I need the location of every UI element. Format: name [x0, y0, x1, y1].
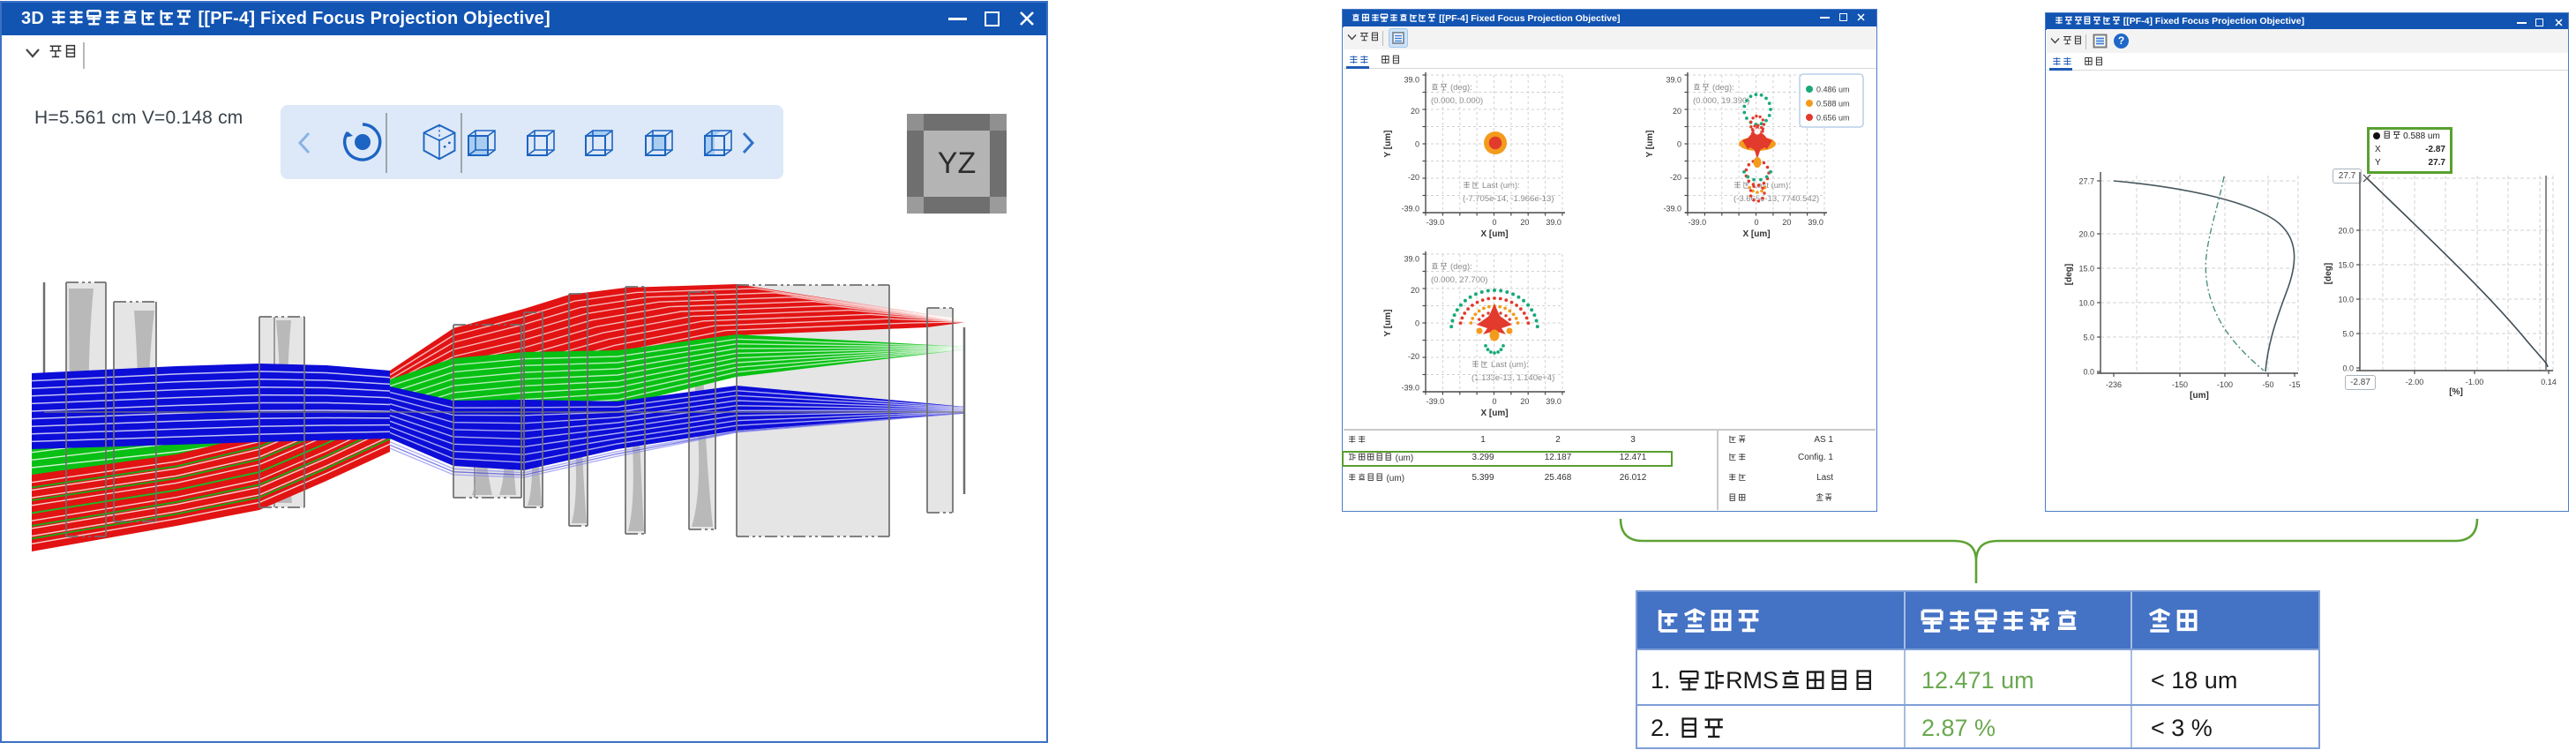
svg-text:0: 0	[1492, 218, 1496, 227]
svg-text:Y [um]: Y [um]	[1383, 131, 1393, 158]
svg-text:-39.0: -39.0	[1401, 205, 1419, 214]
svg-text:39.0: 39.0	[1404, 254, 1419, 263]
svg-text:5.0: 5.0	[2083, 334, 2094, 342]
svg-text:-20: -20	[1408, 352, 1419, 361]
svg-text:20.0: 20.0	[2078, 230, 2094, 239]
svg-text:[deg]: [deg]	[2064, 264, 2074, 285]
svg-text:[%]: [%]	[2449, 387, 2463, 397]
svg-text:20: 20	[1411, 107, 1419, 116]
svg-text:20: 20	[1520, 397, 1529, 406]
svg-text:39.0: 39.0	[1546, 218, 1561, 227]
svg-text:0.0: 0.0	[2342, 364, 2354, 373]
svg-text:-2.00: -2.00	[2406, 378, 2424, 386]
svg-text:15.0: 15.0	[2338, 261, 2354, 270]
svg-text:Y [um]: Y [um]	[1383, 310, 1393, 337]
svg-text:[deg]: [deg]	[2324, 263, 2333, 284]
svg-text:5.0: 5.0	[2342, 330, 2354, 339]
svg-text:10.0: 10.0	[2078, 299, 2094, 308]
svg-text:0.486 um: 0.486 um	[1816, 86, 1850, 94]
svg-text:20: 20	[1520, 218, 1529, 227]
svg-text:-39.0: -39.0	[1401, 384, 1419, 393]
svg-text:0.656 um: 0.656 um	[1816, 114, 1850, 123]
svg-text:0: 0	[1415, 140, 1419, 149]
svg-text:-15: -15	[2288, 380, 2300, 389]
svg-text:Y [um]: Y [um]	[1645, 131, 1655, 158]
svg-text:-1.00: -1.00	[2466, 378, 2484, 386]
svg-text:-50: -50	[2262, 380, 2273, 389]
svg-text:-100: -100	[2217, 380, 2233, 389]
svg-text:20.0: 20.0	[2338, 227, 2354, 236]
svg-text:10.0: 10.0	[2338, 296, 2354, 304]
svg-text:X [um]: X [um]	[1742, 229, 1770, 239]
svg-text:0: 0	[1754, 218, 1758, 227]
svg-text:27.7: 27.7	[2078, 177, 2094, 186]
svg-text:-150: -150	[2172, 380, 2188, 389]
svg-text:0.14: 0.14	[2541, 378, 2557, 386]
svg-text:0: 0	[1492, 397, 1496, 406]
svg-text:-39.0: -39.0	[1663, 205, 1681, 214]
svg-text:39.0: 39.0	[1666, 75, 1681, 84]
svg-text:-39.0: -39.0	[1689, 218, 1707, 227]
svg-text:-39.0: -39.0	[1427, 218, 1445, 227]
svg-text:15.0: 15.0	[2078, 265, 2094, 274]
svg-text:-236: -236	[2106, 380, 2122, 389]
svg-text:39.0: 39.0	[1404, 75, 1419, 84]
svg-text:20: 20	[1782, 218, 1791, 227]
svg-text:20: 20	[1673, 107, 1681, 116]
svg-text:-20: -20	[1408, 173, 1419, 182]
svg-text:-20: -20	[1670, 173, 1681, 182]
svg-text:0.0: 0.0	[2083, 368, 2094, 377]
svg-text:20: 20	[1411, 286, 1419, 295]
svg-text:0.588 um: 0.588 um	[1816, 100, 1850, 109]
svg-text:[um]: [um]	[2190, 391, 2209, 401]
svg-text:X [um]: X [um]	[1480, 229, 1508, 239]
svg-text:0: 0	[1415, 319, 1419, 328]
svg-text:39.0: 39.0	[1808, 218, 1823, 227]
svg-text:39.0: 39.0	[1546, 397, 1561, 406]
svg-text:-39.0: -39.0	[1427, 397, 1445, 406]
svg-text:X [um]: X [um]	[1480, 409, 1508, 418]
svg-text:0: 0	[1677, 140, 1681, 149]
